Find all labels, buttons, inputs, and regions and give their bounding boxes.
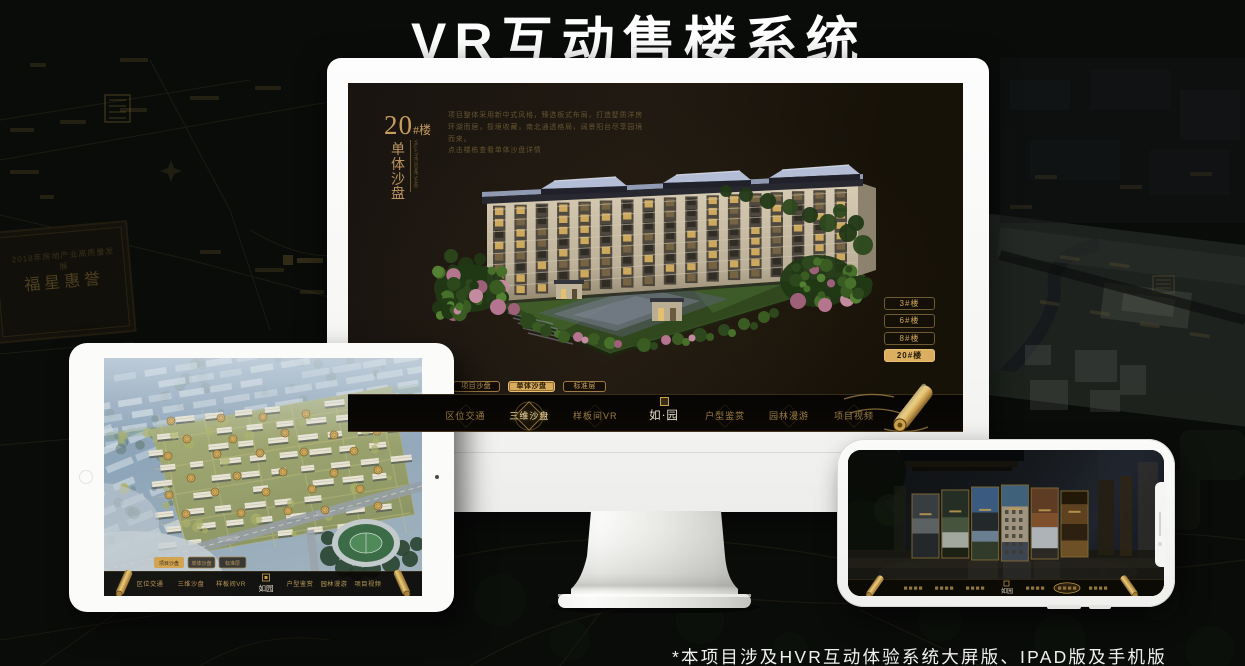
svg-text:区位交通: 区位交通: [137, 580, 164, 588]
svg-text:如园: 如园: [259, 583, 274, 593]
svg-text:户型鉴赏: 户型鉴赏: [287, 580, 314, 588]
svg-text:如园: 如园: [1001, 587, 1013, 595]
svg-text:项目沙盘: 项目沙盘: [159, 560, 179, 567]
svg-text:三维沙盘: 三维沙盘: [178, 580, 205, 588]
svg-text:单体沙盘: 单体沙盘: [191, 560, 211, 567]
svg-text:园林漫游: 园林漫游: [321, 580, 348, 588]
svg-text:标准层: 标准层: [225, 560, 240, 567]
svg-text:样板间VR: 样板间VR: [216, 580, 246, 588]
svg-text:项目视频: 项目视频: [355, 580, 382, 588]
